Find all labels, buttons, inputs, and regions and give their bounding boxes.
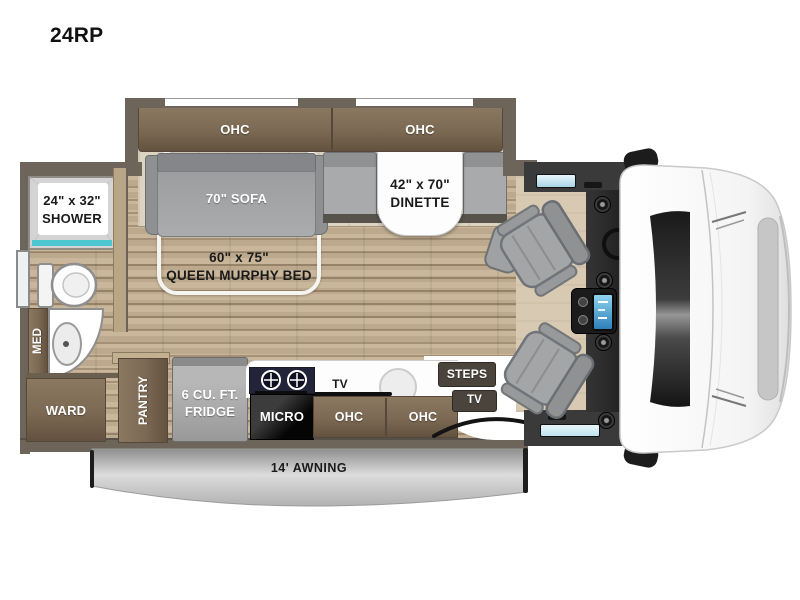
wardrobe-label: WARD xyxy=(27,403,105,418)
slideout-ohc-right-label: OHC xyxy=(345,122,495,137)
slideout-window-right xyxy=(356,98,473,106)
murphy-bed-label: 60" x 75" QUEEN MURPHY BED xyxy=(159,249,319,285)
bath-window xyxy=(16,250,30,308)
sofa: 70" SOFA xyxy=(145,153,328,237)
shower-size: 24" x 32" xyxy=(28,192,116,210)
slideout-wall-right xyxy=(503,98,516,166)
sofa-label: 70" SOFA xyxy=(157,191,316,206)
awning xyxy=(90,448,528,510)
bath-partition-wall xyxy=(113,168,128,332)
med-cabinet: MED xyxy=(28,308,48,374)
toilet xyxy=(36,256,100,314)
slideout-window-left xyxy=(165,98,298,106)
fridge-size: 6 CU. FT. xyxy=(173,386,247,403)
fridge-label: 6 CU. FT. FRIDGE xyxy=(173,386,247,420)
murphy-bed-name: QUEEN MURPHY BED xyxy=(159,267,319,285)
shower-threshold xyxy=(32,240,112,246)
counter-tv-label: TV xyxy=(322,377,358,391)
bath-faucet-icon xyxy=(63,341,69,347)
cab-seat-passenger xyxy=(495,318,600,426)
microwave: MICRO xyxy=(250,394,314,440)
stove-icon xyxy=(249,367,315,394)
shower-label: 24" x 32" SHOWER xyxy=(28,192,116,228)
windshield xyxy=(650,211,690,407)
dinette-size: 42" x 70" xyxy=(377,176,463,194)
fridge-name: FRIDGE xyxy=(173,403,247,420)
pantry-label: PANTRY xyxy=(119,359,167,442)
dinette-label: 42" x 70" DINETTE xyxy=(377,176,463,212)
sofa-back xyxy=(157,153,316,173)
cab-seat-driver xyxy=(491,193,596,301)
dinette-bench-left xyxy=(323,152,377,218)
toilet-tank xyxy=(38,264,53,307)
awning-label: 14' AWNING xyxy=(90,461,528,475)
shower-name: SHOWER xyxy=(28,210,116,228)
fridge: 6 CU. FT. FRIDGE xyxy=(172,357,248,442)
slideout-wall-left xyxy=(125,98,138,166)
floorplan-canvas: 24RP 60" x 75" QUEEN MURPHY BED 70" SOFA… xyxy=(0,0,800,600)
slideout-ohc-divider xyxy=(331,108,333,150)
dinette-name: DINETTE xyxy=(377,194,463,212)
murphy-bed-size: 60" x 75" xyxy=(159,249,319,267)
microwave-label: MICRO xyxy=(251,409,313,424)
van-front xyxy=(610,138,800,478)
wardrobe: WARD xyxy=(26,378,106,442)
floorplan-title: 24RP xyxy=(50,24,140,48)
pantry: PANTRY xyxy=(118,358,168,443)
kitchen-ohc-left-label: OHC xyxy=(313,410,385,424)
med-cabinet-label: MED xyxy=(29,309,47,373)
slideout-ohc-left-label: OHC xyxy=(160,122,310,137)
front-trim-strip xyxy=(758,218,778,400)
